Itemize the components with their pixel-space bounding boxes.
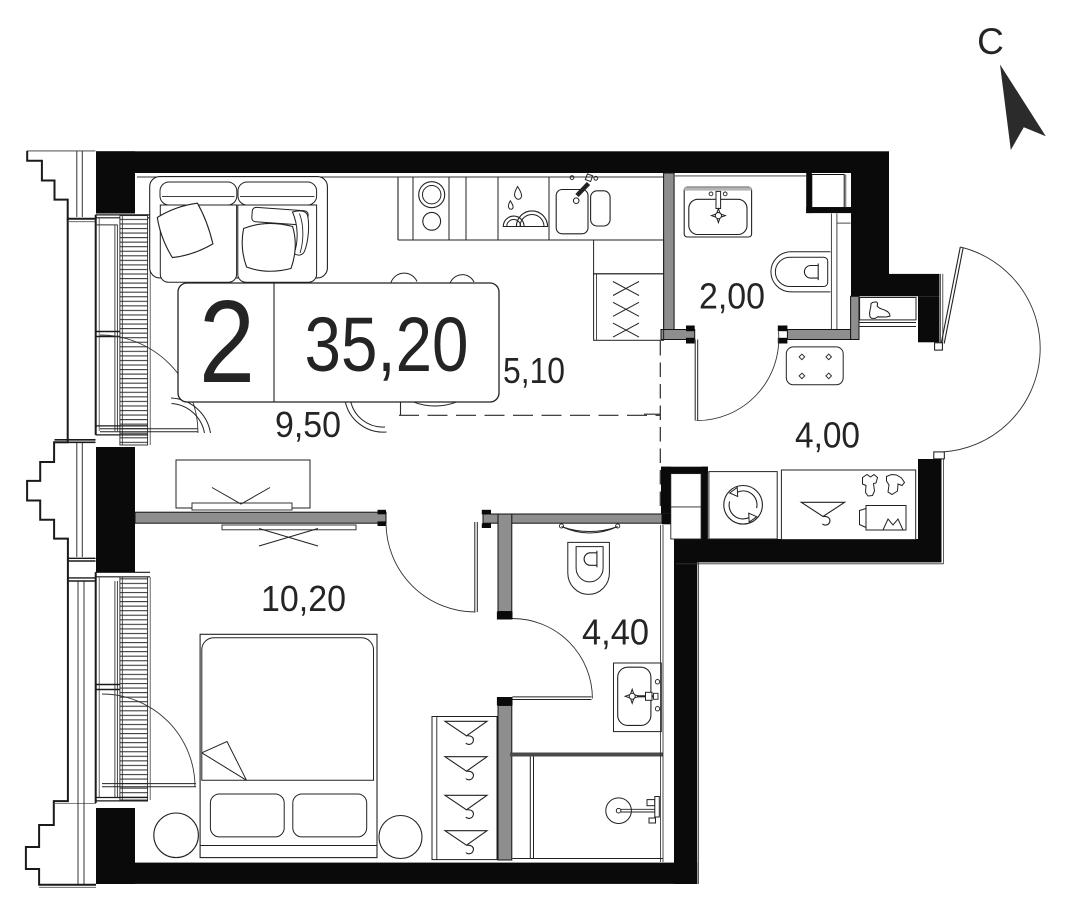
svg-text:2: 2 — [199, 276, 255, 407]
svg-text:35,20: 35,20 — [305, 302, 469, 388]
svg-text:2,00: 2,00 — [699, 276, 765, 317]
svg-text:9,50: 9,50 — [275, 404, 341, 445]
svg-text:С: С — [977, 21, 1004, 62]
svg-text:4,40: 4,40 — [582, 611, 649, 652]
svg-text:5,10: 5,10 — [503, 350, 565, 391]
svg-text:4,00: 4,00 — [795, 414, 860, 455]
svg-text:10,20: 10,20 — [261, 578, 346, 619]
